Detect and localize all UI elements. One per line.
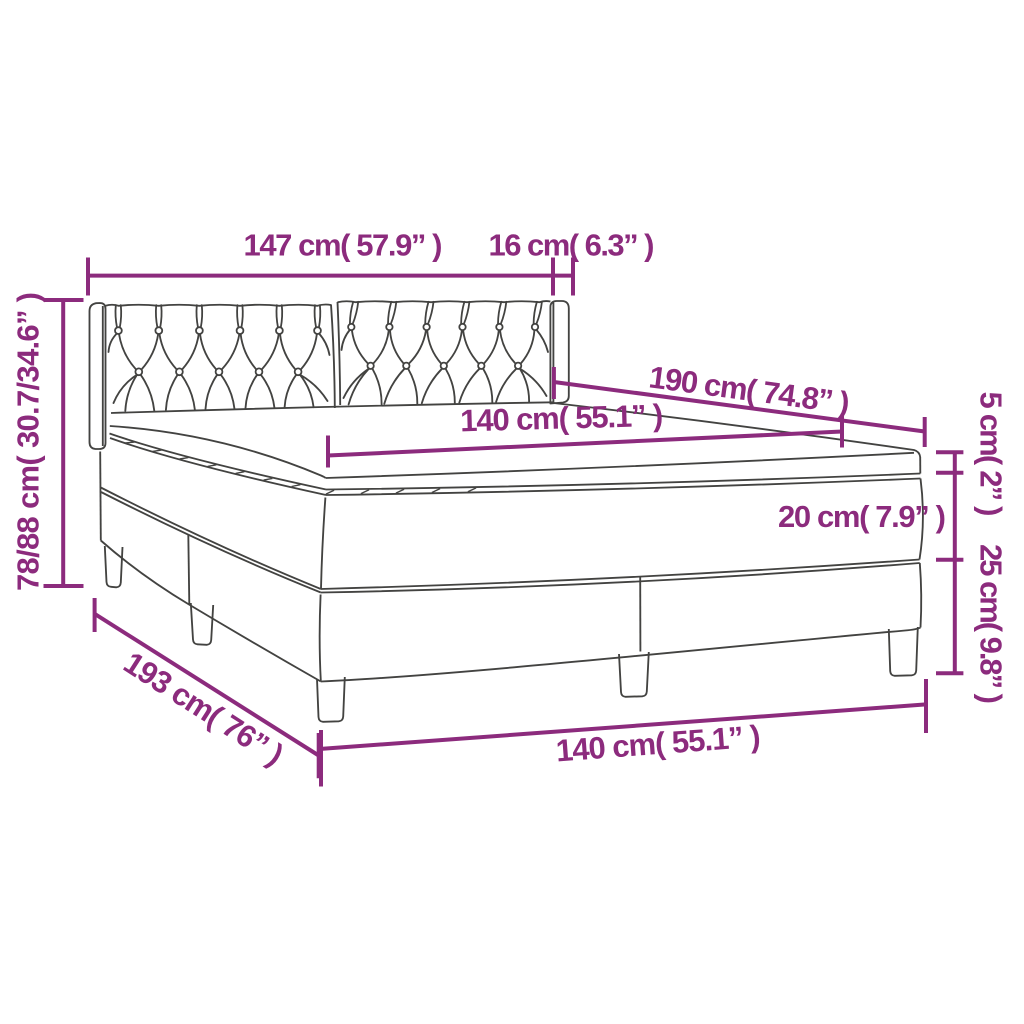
svg-text:20 cm( 7.9” ): 20 cm( 7.9” ) bbox=[778, 499, 946, 534]
svg-text:16 cm( 6.3” ): 16 cm( 6.3” ) bbox=[489, 227, 655, 262]
svg-text:140 cm( 55.1” ): 140 cm( 55.1” ) bbox=[460, 398, 664, 439]
svg-text:147 cm( 57.9” ): 147 cm( 57.9” ) bbox=[244, 227, 443, 262]
svg-text:5 cm( 2” ): 5 cm( 2” ) bbox=[974, 392, 1009, 517]
svg-text:78/88 cm( 30.7/34.6” ): 78/88 cm( 30.7/34.6” ) bbox=[10, 292, 45, 591]
svg-text:25 cm( 9.8” ): 25 cm( 9.8” ) bbox=[974, 544, 1009, 704]
